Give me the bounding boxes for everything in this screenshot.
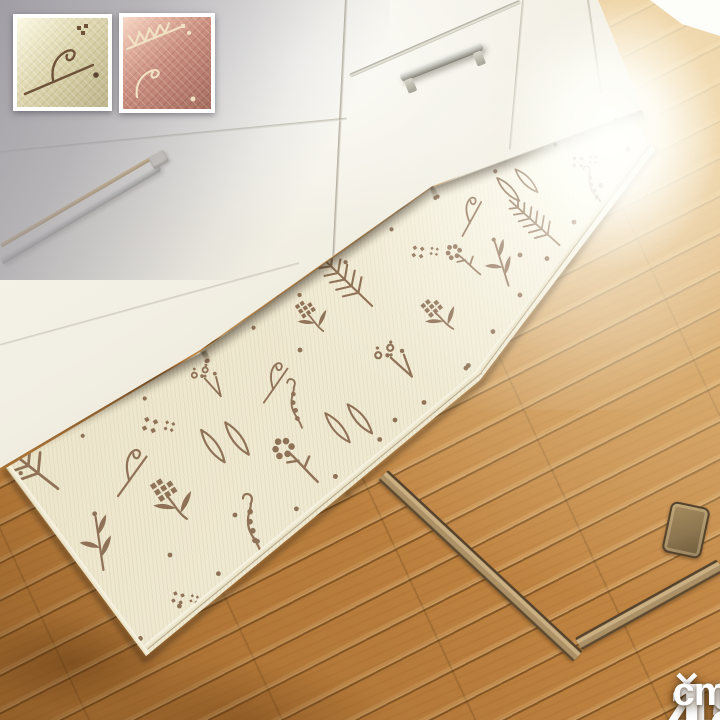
color-swatch-pink[interactable] xyxy=(119,13,215,113)
dimension-label: 45 × 180 cm xyxy=(667,672,706,714)
cabinet-handle-reflection xyxy=(0,154,157,247)
cabinet-seam xyxy=(509,0,525,150)
drawer-handle-foot xyxy=(473,50,487,66)
drawer-handle-foot xyxy=(404,77,418,93)
color-swatches xyxy=(13,14,215,113)
cabinet-seam xyxy=(0,118,347,154)
cabinet-seam xyxy=(587,0,602,93)
cabinet-handle xyxy=(0,164,162,263)
dim-unit: cm xyxy=(672,672,720,712)
swatch-ivory-motif xyxy=(17,18,108,107)
color-swatch-ivory[interactable] xyxy=(13,14,112,111)
cabinet-handle-foot xyxy=(148,150,169,170)
swatch-pink-motif xyxy=(123,17,211,109)
product-photo: 45 × 180 cm xyxy=(0,0,720,720)
